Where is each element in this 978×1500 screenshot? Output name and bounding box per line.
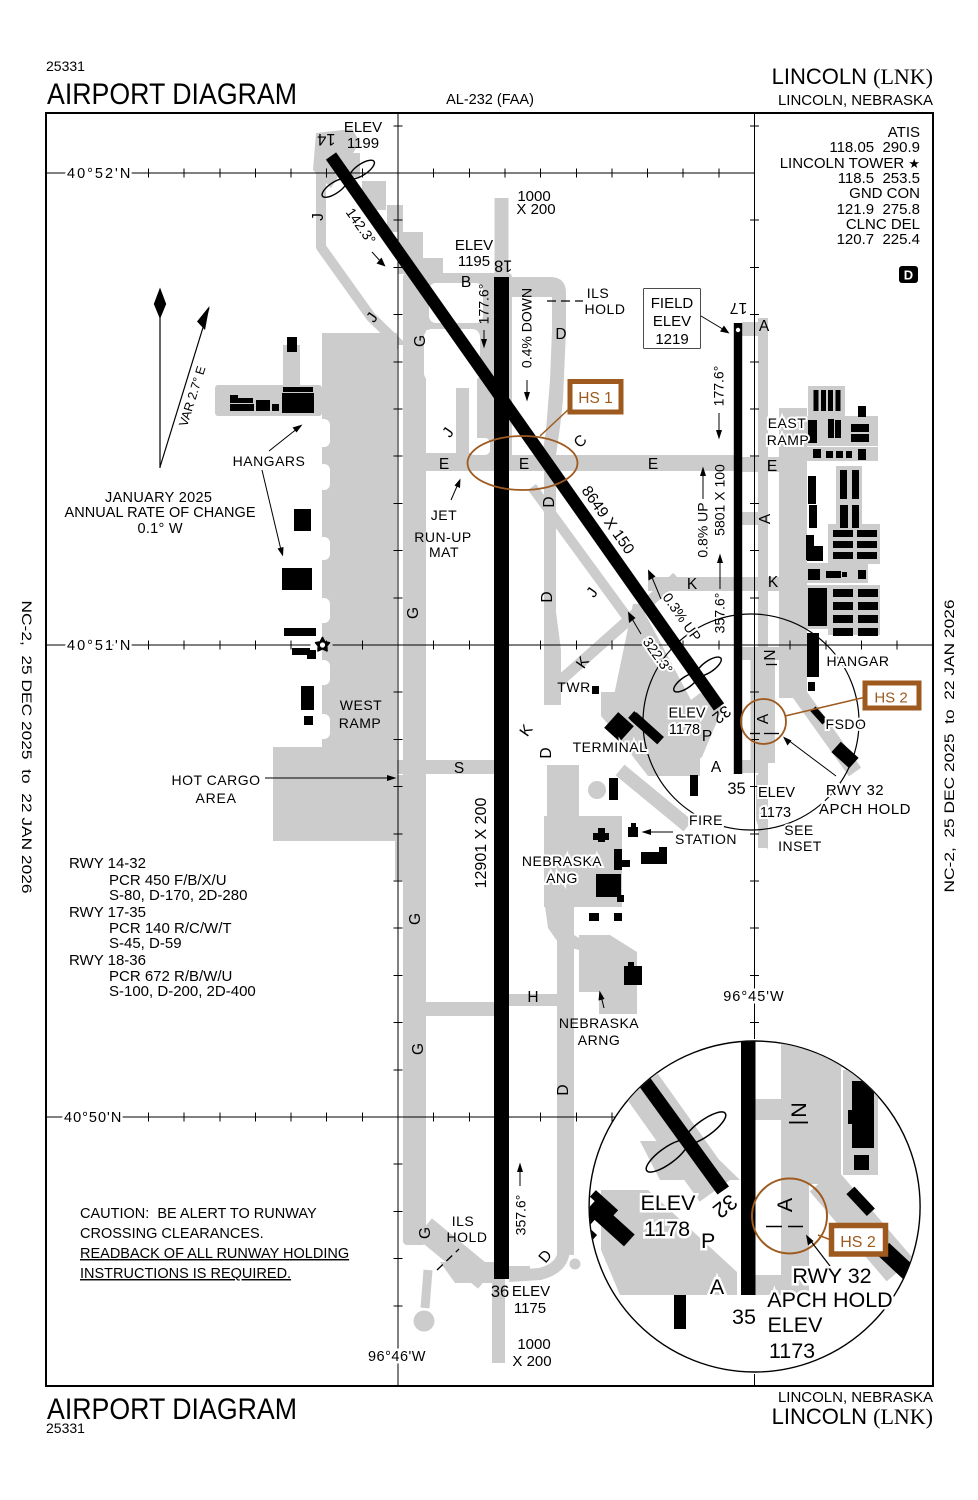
svg-text:HANGARS: HANGARS	[233, 453, 306, 469]
svg-text:1219: 1219	[655, 331, 688, 348]
svg-text:ELEV: ELEV	[344, 119, 382, 136]
svg-text:12901 X 200: 12901 X 200	[473, 798, 490, 889]
svg-text:E: E	[767, 458, 777, 475]
svg-text:S-80, D-170, 2D-280: S-80, D-170, 2D-280	[109, 887, 247, 904]
svg-text:D: D	[538, 747, 555, 758]
svg-text:17: 17	[730, 299, 748, 316]
svg-text:MAT: MAT	[429, 544, 459, 560]
svg-text:NC-2, 25 DEC 2025 to 22 JAN: NC-2, 25 DEC 2025 to 22 JAN 2026	[942, 600, 957, 893]
svg-text:LINCOLN, NEBRASKA: LINCOLN, NEBRASKA	[778, 92, 933, 109]
svg-text:J: J	[310, 213, 327, 221]
svg-text:HS 2: HS 2	[874, 690, 907, 707]
svg-text:RAMP: RAMP	[767, 432, 809, 448]
svg-text:1175: 1175	[514, 1300, 546, 1317]
svg-text:HS 2: HS 2	[840, 1234, 876, 1251]
svg-text:A: A	[711, 759, 722, 776]
svg-text:S: S	[454, 760, 464, 777]
svg-text:G: G	[407, 913, 424, 925]
svg-text:ELEV: ELEV	[641, 1191, 697, 1215]
svg-text:FIRE: FIRE	[689, 812, 723, 828]
svg-text:1173: 1173	[769, 1339, 815, 1363]
svg-text:D: D	[555, 1084, 572, 1095]
svg-text:25331: 25331	[46, 1420, 85, 1436]
svg-text:HANGAR: HANGAR	[827, 653, 890, 669]
svg-text:S-100, D-200, 2D-400: S-100, D-200, 2D-400	[109, 983, 256, 1000]
svg-text:FIELD: FIELD	[651, 295, 694, 312]
svg-text:E: E	[648, 456, 658, 473]
svg-text:APCH HOLD: APCH HOLD	[767, 1288, 892, 1312]
svg-text:G: G	[412, 335, 429, 347]
svg-text:1195: 1195	[458, 253, 490, 270]
svg-text:ILS: ILS	[587, 285, 610, 301]
svg-text:ILS: ILS	[452, 1213, 475, 1229]
svg-text:CROSSING CLEARANCES.: CROSSING CLEARANCES.	[80, 1226, 264, 1242]
svg-text:D: D	[904, 268, 913, 283]
svg-text:40°50'N: 40°50'N	[64, 1110, 122, 1126]
svg-text:NEBRASKA: NEBRASKA	[522, 853, 602, 869]
svg-text:HOT CARGO: HOT CARGO	[172, 772, 261, 788]
svg-text:ELEV: ELEV	[768, 1313, 824, 1337]
svg-text:118.05 290.9: 118.05 290.9	[829, 139, 920, 156]
svg-text:CAUTION: BE ALERT TO RUNWAY: CAUTION: BE ALERT TO RUNWAY	[80, 1206, 317, 1222]
svg-text:RUN-UP: RUN-UP	[414, 529, 471, 545]
svg-text:1178: 1178	[669, 722, 700, 738]
svg-text:96°45'W: 96°45'W	[723, 989, 785, 1005]
svg-text:EAST: EAST	[768, 415, 807, 431]
svg-text:N: N	[762, 649, 779, 660]
svg-text:JET: JET	[431, 507, 457, 523]
svg-text:AL-232 (FAA): AL-232 (FAA)	[446, 92, 534, 108]
svg-text:1199: 1199	[347, 135, 379, 152]
svg-text:25331: 25331	[46, 58, 85, 74]
svg-text:RWY 14-32: RWY 14-32	[69, 855, 146, 872]
svg-text:18: 18	[494, 257, 512, 275]
svg-text:A: A	[773, 1197, 797, 1212]
svg-text:WEST: WEST	[340, 697, 382, 713]
svg-text:1000: 1000	[517, 1336, 550, 1353]
svg-text:35: 35	[732, 1305, 756, 1329]
svg-text:GND CON: GND CON	[849, 185, 920, 202]
svg-text:ANG: ANG	[546, 870, 578, 886]
svg-text:HOLD: HOLD	[447, 1229, 488, 1245]
svg-text:357.6°: 357.6°	[712, 593, 728, 634]
svg-text:STATION: STATION	[675, 831, 737, 847]
svg-text:RWY 32: RWY 32	[792, 1264, 871, 1288]
svg-text:A: A	[759, 318, 770, 335]
svg-text:A: A	[755, 713, 772, 724]
svg-text:AREA: AREA	[196, 790, 237, 806]
svg-text:1178: 1178	[644, 1217, 690, 1241]
svg-text:X 200: X 200	[512, 1353, 551, 1370]
svg-text:RWY 18-36: RWY 18-36	[69, 952, 146, 969]
svg-text:35: 35	[727, 780, 745, 798]
svg-text:357.6°: 357.6°	[513, 1195, 529, 1236]
svg-text:14: 14	[317, 130, 335, 148]
svg-text:FSDO: FSDO	[826, 716, 867, 732]
svg-text:G: G	[417, 1227, 434, 1239]
svg-text:X 200: X 200	[516, 201, 555, 218]
svg-text:177.6°: 177.6°	[476, 284, 492, 325]
svg-text:5801 X 100: 5801 X 100	[711, 464, 727, 536]
svg-text:NEBRASKA: NEBRASKA	[559, 1015, 639, 1031]
svg-text:ELEV: ELEV	[512, 1283, 550, 1300]
svg-text:RWY 17-35: RWY 17-35	[69, 904, 146, 921]
svg-text:HOLD: HOLD	[585, 301, 626, 317]
svg-text:D: D	[555, 326, 566, 343]
svg-text:S-45, D-59: S-45, D-59	[109, 935, 182, 952]
svg-text:G: G	[410, 1043, 427, 1055]
svg-text:A: A	[710, 1275, 725, 1299]
svg-text:ANNUAL RATE OF CHANGE: ANNUAL RATE OF CHANGE	[65, 505, 256, 521]
svg-text:120.7 225.4: 120.7 225.4	[837, 231, 920, 248]
svg-text:JANUARY 2025: JANUARY 2025	[105, 490, 212, 506]
svg-text:P: P	[701, 1229, 715, 1253]
svg-text:36: 36	[491, 1283, 509, 1301]
svg-text:N: N	[787, 1102, 811, 1118]
svg-text:ELEV: ELEV	[455, 237, 493, 254]
svg-text:A: A	[757, 513, 774, 524]
svg-text:P: P	[702, 728, 712, 745]
svg-text:K: K	[768, 574, 779, 591]
svg-text:E: E	[519, 456, 529, 473]
svg-text:READBACK OF ALL RUNWAY HOLDING: READBACK OF ALL RUNWAY HOLDING	[80, 1246, 349, 1262]
svg-text:NC-2, 25 DEC 2025 to 22 JAN: NC-2, 25 DEC 2025 to 22 JAN 2026	[19, 601, 34, 894]
svg-text:40°51'N: 40°51'N	[67, 638, 132, 654]
svg-text:RWY 32: RWY 32	[826, 782, 884, 799]
svg-text:INSET: INSET	[778, 838, 822, 854]
svg-text:B: B	[461, 274, 471, 291]
svg-text:0.8% UP: 0.8% UP	[695, 502, 711, 557]
svg-text:0.4% DOWN: 0.4% DOWN	[519, 288, 535, 368]
svg-text:ARNG: ARNG	[578, 1032, 620, 1048]
svg-text:AIRPORT DIAGRAM: AIRPORT DIAGRAM	[47, 78, 297, 111]
svg-text:TWR: TWR	[557, 679, 590, 695]
svg-text:96°46'W: 96°46'W	[368, 1349, 426, 1365]
svg-text:D: D	[539, 591, 556, 602]
svg-text:H: H	[527, 989, 538, 1006]
svg-text:ELEV: ELEV	[758, 785, 795, 801]
svg-text:APCH HOLD: APCH HOLD	[819, 801, 911, 818]
svg-text:1173: 1173	[760, 805, 791, 821]
svg-text:SEE: SEE	[784, 822, 814, 838]
svg-text:D: D	[541, 496, 558, 507]
svg-text:0.1° W: 0.1° W	[138, 521, 183, 537]
svg-text:LINCOLN (LNK): LINCOLN (LNK)	[772, 64, 933, 89]
svg-text:TERMINAL: TERMINAL	[573, 739, 648, 755]
svg-text:LINCOLN (LNK): LINCOLN (LNK)	[772, 1404, 933, 1429]
svg-text:G: G	[405, 607, 422, 619]
svg-text:40°52'N: 40°52'N	[67, 166, 132, 182]
svg-text:HS 1: HS 1	[578, 390, 612, 407]
svg-text:RAMP: RAMP	[339, 715, 381, 731]
svg-text:ELEV: ELEV	[653, 313, 691, 330]
svg-text:ELEV: ELEV	[668, 706, 705, 722]
svg-text:E: E	[439, 456, 449, 473]
svg-text:INSTRUCTIONS IS REQUIRED.: INSTRUCTIONS IS REQUIRED.	[80, 1266, 291, 1282]
svg-text:177.6°: 177.6°	[711, 366, 727, 407]
svg-text:K: K	[687, 576, 698, 593]
